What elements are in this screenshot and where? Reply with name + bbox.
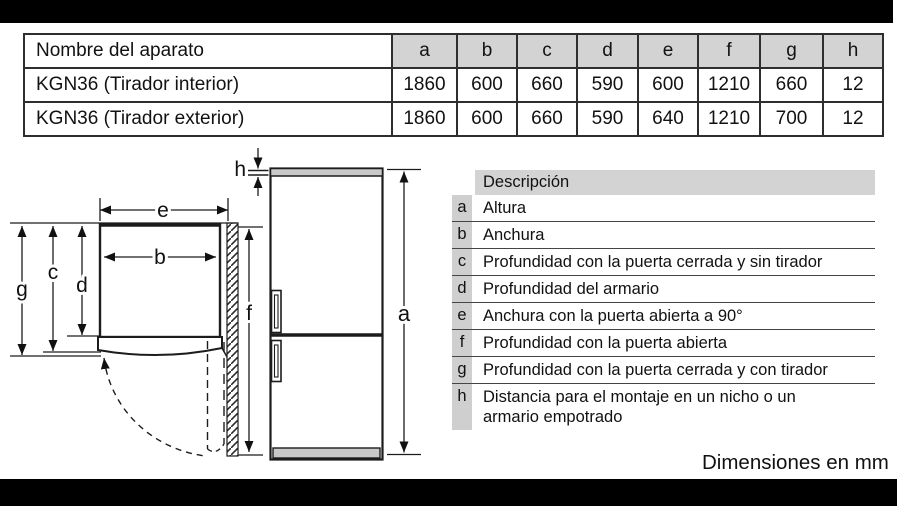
dim-cell: 12: [823, 102, 883, 136]
door-open-dashed: [208, 444, 225, 452]
description-key: f: [452, 330, 472, 356]
dim-cell: 1210: [698, 68, 760, 102]
fridge-dimension-drawing: e b c d g f h a: [0, 140, 440, 485]
dim-cell: 700: [760, 102, 823, 136]
dim-cell: 1860: [392, 68, 457, 102]
list-item: f Profundidad con la puerta abierta: [452, 330, 875, 357]
description-text: Profundidad del armario: [475, 276, 843, 302]
dim-cell: 590: [577, 68, 638, 102]
lower-door-handle: [272, 341, 282, 382]
description-text: Profundidad con la puerta cerrada y con …: [475, 357, 843, 383]
dim-col-header: d: [577, 34, 638, 68]
list-item: c Profundidad con la puerta cerrada y si…: [452, 249, 875, 276]
dimensions-table-header-row: Nombre del aparato a b c d e f g h: [24, 34, 883, 68]
dim-cell: 600: [457, 68, 517, 102]
description-table: Descripción a Altura b Anchura c Profund…: [452, 170, 875, 430]
dim-cell: 600: [457, 102, 517, 136]
units-note: Dimensiones en mm: [702, 451, 889, 475]
description-text: Altura: [475, 195, 843, 221]
dim-col-header: a: [392, 34, 457, 68]
description-text: Profundidad con la puerta cerrada y sin …: [475, 249, 843, 275]
dim-cell: 640: [638, 102, 698, 136]
dim-cell: 600: [638, 68, 698, 102]
dim-cell: 590: [577, 102, 638, 136]
description-key: a: [452, 195, 472, 221]
list-item: d Profundidad del armario: [452, 276, 875, 303]
dim-cell: 660: [517, 102, 577, 136]
dim-cell: 660: [517, 68, 577, 102]
description-text: Profundidad con la puerta abierta: [475, 330, 843, 356]
table-row: KGN36 (Tirador exterior) 1860 600 660 59…: [24, 102, 883, 136]
description-header: Descripción: [475, 170, 875, 195]
cabinet-top-view: [100, 224, 220, 337]
door-swing-arc: [104, 358, 205, 456]
dim-label-b: b: [154, 246, 166, 269]
dim-col-header: c: [517, 34, 577, 68]
top-black-band: [0, 0, 893, 23]
dim-col-header: e: [638, 34, 698, 68]
dim-cell: 660: [760, 68, 823, 102]
description-text: Anchura con la puerta abierta a 90°: [475, 303, 843, 329]
appliance-name-header: Nombre del aparato: [24, 34, 392, 68]
list-item: e Anchura con la puerta abierta a 90°: [452, 303, 875, 330]
description-key: e: [452, 303, 472, 329]
upper-door-handle: [272, 291, 282, 333]
dimensions-table: Nombre del aparato a b c d e f g h KGN36…: [23, 33, 884, 137]
dim-col-header: g: [760, 34, 823, 68]
table-row: KGN36 (Tirador interior) 1860 600 660 59…: [24, 68, 883, 102]
description-text: Distancia para el montaje en un nicho o …: [475, 384, 843, 430]
description-key: d: [452, 276, 472, 302]
list-item: g Profundidad con la puerta cerrada y co…: [452, 357, 875, 384]
description-key: b: [452, 222, 472, 248]
front-view: [248, 148, 421, 460]
list-item: a Altura: [452, 195, 875, 222]
description-key: g: [452, 357, 472, 383]
fridge-body: [271, 169, 383, 460]
appliance-name-cell: KGN36 (Tirador exterior): [24, 102, 392, 136]
dim-label-c: c: [48, 261, 59, 284]
dim-label-f: f: [246, 302, 252, 325]
list-item: h Distancia para el montaje en un nicho …: [452, 384, 875, 430]
description-text: Anchura: [475, 222, 843, 248]
dim-col-header: f: [698, 34, 760, 68]
fridge-plinth: [273, 448, 380, 458]
dim-col-header: b: [457, 34, 517, 68]
door-closed-top-view: [98, 337, 222, 355]
appliance-name-cell: KGN36 (Tirador interior): [24, 68, 392, 102]
wall-hatched: [227, 223, 238, 456]
dim-label-a: a: [398, 301, 411, 326]
fridge-top-cap: [271, 169, 383, 177]
dim-label-h: h: [234, 158, 246, 181]
description-key: h: [452, 384, 472, 430]
dim-cell: 12: [823, 68, 883, 102]
dim-label-d: d: [76, 274, 88, 297]
dim-cell: 1210: [698, 102, 760, 136]
dim-label-g: g: [16, 278, 28, 301]
plan-view: [10, 198, 263, 456]
list-item: b Anchura: [452, 222, 875, 249]
dim-cell: 1860: [392, 102, 457, 136]
dim-label-e: e: [157, 199, 169, 222]
dim-col-header: h: [823, 34, 883, 68]
description-key: c: [452, 249, 472, 275]
